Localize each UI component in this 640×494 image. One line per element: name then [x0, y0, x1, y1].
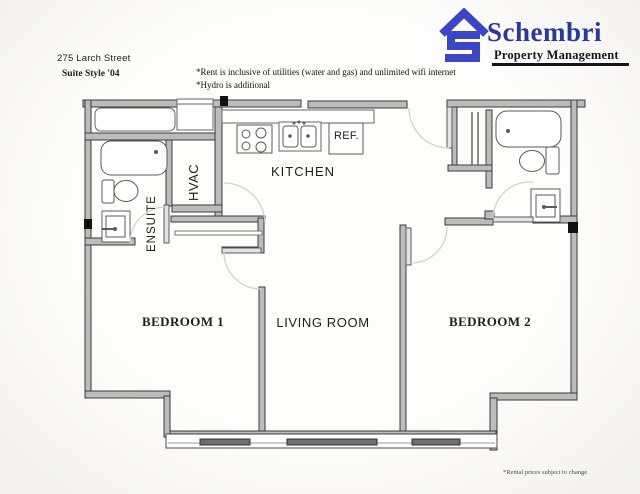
bedroom2-window	[412, 439, 460, 445]
hall-closet-door-track	[175, 231, 262, 235]
ensuite-bathtub	[101, 141, 167, 175]
bedroom1-label: BEDROOM 1	[133, 314, 233, 330]
stove-burner	[256, 128, 266, 138]
entry-closet-bottom-wall	[85, 133, 222, 140]
bath2-bathtub	[496, 111, 561, 147]
fridge-label: REF.	[330, 130, 363, 142]
ensuite-toilet-tank	[102, 180, 114, 203]
bedroom2-door-arc	[411, 227, 447, 263]
panel-top-wall	[220, 96, 228, 106]
sink-faucet	[303, 122, 305, 124]
ensuite-label: ENSUITE	[146, 172, 158, 252]
bath2-toilet-bowl	[520, 151, 545, 172]
stove-burner	[242, 130, 250, 138]
entry-door-leaf	[447, 107, 452, 148]
entry-closet-shelf	[95, 108, 175, 131]
bedroom2-closet-left-wall	[452, 107, 457, 167]
sink-drain	[289, 135, 292, 138]
bottom-left-step-v	[164, 396, 170, 437]
right-wall	[571, 100, 577, 400]
ensuite-door-leaf	[164, 205, 169, 243]
bottom-left-step-h	[85, 391, 170, 398]
living-room-label: LIVING ROOM	[274, 315, 372, 330]
stove-burner	[242, 142, 250, 150]
bath2-tub-drain	[507, 130, 510, 133]
hvac-bottom-wall	[172, 205, 222, 212]
ensuite-sink-basin	[106, 216, 125, 237]
ensuite-faucet-dot	[114, 228, 117, 231]
living-window	[287, 439, 377, 445]
bedroom2-door-leaf	[406, 228, 411, 265]
bedroom2-label: BEDROOM 2	[440, 314, 540, 330]
sink-faucet	[293, 122, 295, 124]
bathroom2-left-wall	[486, 110, 492, 188]
hvac-label: HVAC	[186, 149, 201, 201]
bath2-door-arc	[493, 182, 533, 218]
top-wall-mid	[308, 101, 407, 108]
window-wall-inner-edge	[170, 431, 496, 434]
kitchen-left-wall	[215, 107, 222, 218]
hall-closet-top	[171, 216, 265, 222]
price-disclaimer: *Rental prices subject to change	[503, 469, 587, 476]
bath2-faucet-dot	[543, 206, 546, 209]
top-wall-right	[447, 100, 585, 107]
sink-drain	[307, 135, 310, 138]
floor-plan	[0, 0, 640, 494]
bedroom1-door-leaf	[222, 248, 261, 253]
stove-burner	[256, 142, 266, 152]
bedroom1-door-arc	[224, 252, 261, 289]
bath2-door-leaf	[493, 217, 533, 222]
panel-right-wall	[568, 222, 578, 233]
living-bedroom2-divider-wall	[400, 225, 406, 437]
bedroom1-living-divider-wall	[259, 287, 265, 437]
ensuite-toilet-bowl	[114, 181, 138, 202]
entry-door-arc	[409, 108, 449, 148]
kitchen-label: KITCHEN	[264, 164, 342, 179]
bath2-toilet-tank	[546, 147, 559, 174]
bedroom1-window	[200, 439, 250, 445]
ensuite-tub-drain	[155, 151, 158, 154]
left-wall	[85, 100, 91, 396]
stove	[237, 125, 272, 153]
sink-faucet	[298, 121, 300, 123]
panel-left-wall	[84, 219, 92, 229]
bottom-right-step-h	[490, 393, 577, 400]
bedroom2-closet-bottom-wall	[448, 165, 492, 171]
